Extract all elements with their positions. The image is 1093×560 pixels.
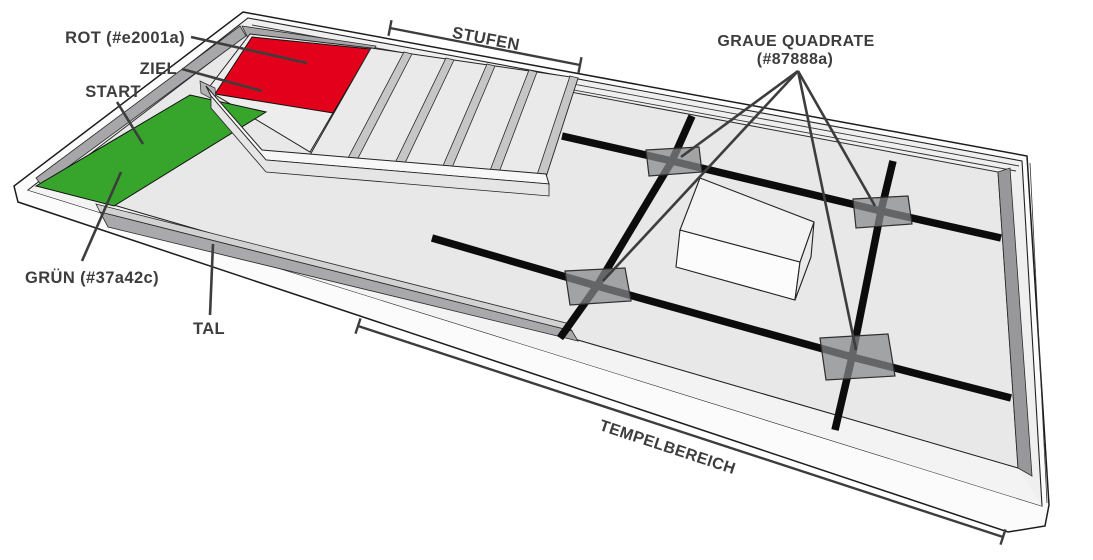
gray-square-1 bbox=[646, 147, 702, 176]
gray-square-3 bbox=[565, 268, 631, 305]
label-stufen: STUFEN bbox=[451, 24, 522, 55]
label-gruen: GRÜN (#37a42c) bbox=[25, 268, 159, 287]
label-graue-quadrate-line1: GRAUE QUADRATE bbox=[717, 33, 874, 50]
label-ziel: ZIEL bbox=[140, 60, 177, 78]
label-graue-quadrate-line2: (#87888a) bbox=[757, 51, 834, 68]
label-tal: TAL bbox=[193, 320, 225, 338]
label-rot: ROT (#e2001a) bbox=[65, 29, 185, 47]
temple-diagram-stage: ROT (#e2001a) ZIEL START GRÜN (#37a42c) … bbox=[0, 0, 1093, 560]
gray-square-4 bbox=[820, 334, 895, 380]
gray-square-2 bbox=[853, 196, 912, 228]
temple-diagram: ROT (#e2001a) ZIEL START GRÜN (#37a42c) … bbox=[0, 0, 1093, 560]
label-start: START bbox=[85, 83, 141, 101]
